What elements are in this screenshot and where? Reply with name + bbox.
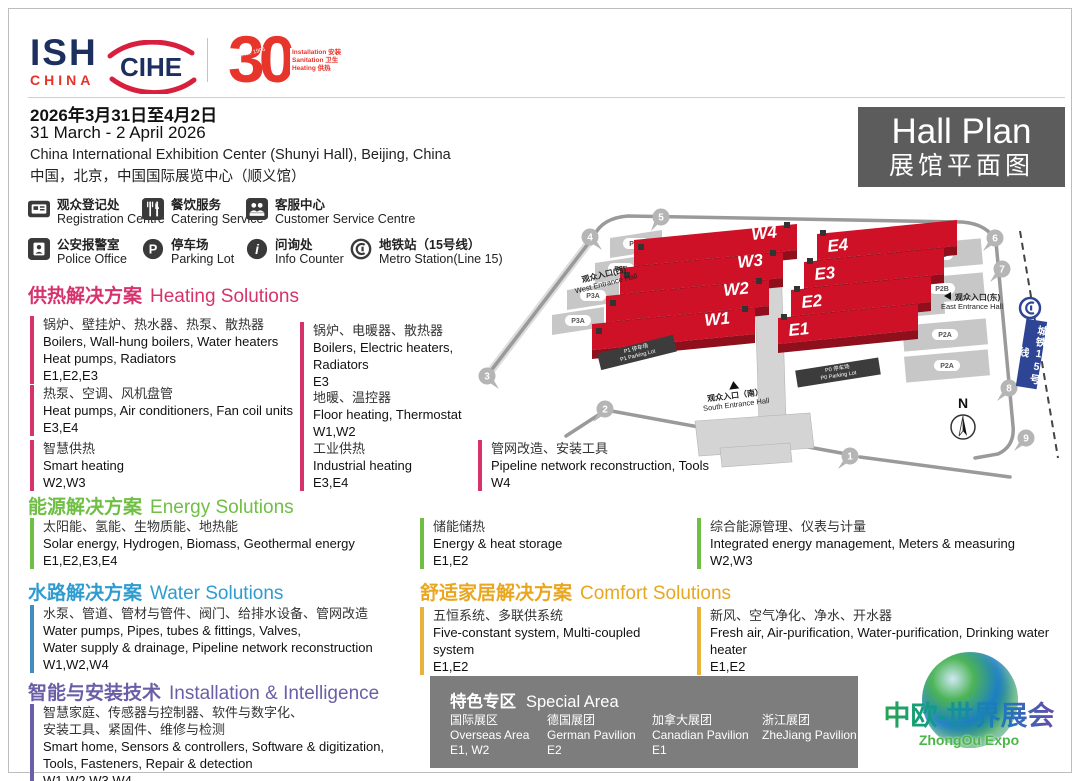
- section-title-en: Heating Solutions: [150, 286, 299, 307]
- svg-text:2: 2: [602, 405, 608, 416]
- svg-text:3: 3: [484, 372, 490, 383]
- svg-text:P: P: [149, 242, 158, 257]
- map-drawing: P3B P3B P3A P3A P2B P2B P2A P2A: [470, 186, 1078, 504]
- special-area-item: 德国展团German PavilionE2: [547, 713, 652, 758]
- hall-label-w3: W3: [736, 250, 764, 272]
- hall-label-w2: W2: [722, 278, 750, 300]
- solution-item: 智慧家庭、传感器与控制器、软件与数字化、 安装工具、紧固件、维修与检测Smart…: [30, 704, 425, 781]
- east-entrance-label: 观众入口(东) East Entrance Hall: [922, 292, 1022, 311]
- west-arrow-icon: [944, 292, 951, 300]
- hall-label-w4: W4: [750, 222, 778, 244]
- legend-label-cn: 客服中心: [275, 198, 415, 212]
- svg-text:9: 9: [1023, 434, 1029, 445]
- special-area-item: 国际展区Overseas AreaE1, W2: [450, 713, 547, 758]
- metro-line-15-label: 城铁15号线: [1016, 319, 1047, 389]
- anniversary-caption: Sanitation 卫生: [292, 57, 341, 65]
- item-color-bar: [300, 440, 304, 491]
- svg-text:7: 7: [999, 265, 1005, 276]
- legend-police: 公安报警室 Police Office: [28, 238, 127, 266]
- svg-text:1: 1: [847, 452, 853, 463]
- hall-plan-map: P3B P3B P3A P3A P2B P2B P2A P2A: [470, 186, 1078, 504]
- hall-label-e1: E1: [787, 319, 810, 340]
- legend-label-cn: 公安报警室: [57, 238, 127, 252]
- special-area-panel: 特色专区Special Area 国际展区Overseas AreaE1, W2…: [430, 676, 858, 768]
- solution-item: 五恒系统、多联供系统Five-constant system, Multi-co…: [420, 607, 680, 675]
- item-color-bar: [30, 440, 34, 491]
- anniversary-caption: Heating 供热: [292, 65, 341, 73]
- legend-label-en: Parking Lot: [171, 252, 234, 266]
- item-color-bar: [300, 389, 304, 440]
- people-desk-icon: [246, 198, 268, 220]
- section-heading-water: 水路解决方案Water Solutions: [28, 578, 283, 605]
- item-color-bar: [30, 605, 34, 673]
- header-divider-line: [28, 97, 1065, 98]
- metro-icon: [350, 238, 372, 260]
- special-area-title: 特色专区Special Area: [450, 688, 619, 712]
- cihe-logo-text: CIHE: [120, 52, 182, 82]
- ish-china-logo: ISH CHINA: [30, 34, 98, 87]
- item-color-bar: [30, 518, 34, 569]
- section-title-cn: 能源解决方案: [28, 497, 142, 518]
- venue-cn: 中国，北京，中国国际展览中心（顺义馆）: [30, 165, 306, 186]
- section-title-en: Comfort Solutions: [580, 583, 731, 604]
- item-color-bar: [30, 385, 34, 436]
- cihe-logo: CIHE: [104, 40, 198, 99]
- legend-label-cn: 问询处: [275, 238, 344, 252]
- ish-logo-subtext: CHINA: [30, 73, 98, 87]
- legend-label-en: Customer Service Centre: [275, 212, 415, 226]
- hall-label-e3: E3: [813, 263, 836, 284]
- solution-item: 综合能源管理、仪表与计量Integrated energy management…: [697, 518, 1047, 569]
- special-area-item: 加拿大展团Canadian PavilionE1: [652, 713, 762, 758]
- svg-text:P3A: P3A: [571, 318, 585, 325]
- solution-item: 智慧供热Smart heatingW2,W3: [30, 440, 298, 491]
- item-color-bar: [697, 607, 701, 675]
- special-area-item: 浙江展团ZheJiang Pavilion: [762, 713, 857, 758]
- item-color-bar: [30, 704, 34, 781]
- special-area-items: 国际展区Overseas AreaE1, W2 德国展团German Pavil…: [450, 713, 857, 758]
- hall-label-e4: E4: [826, 235, 849, 256]
- section-heading-installation: 智能与安装技术Installation & Intelligence: [28, 678, 379, 705]
- section-heading-heating: 供热解决方案Heating Solutions: [28, 281, 299, 308]
- section-title-cn: 水路解决方案: [28, 583, 142, 604]
- solution-item: 水泵、管道、管材与管件、阀门、给排水设备、管网改造Water pumps, Pi…: [30, 605, 410, 673]
- anniversary-captions: Installation 安装 Sanitation 卫生 Heating 供热: [290, 48, 343, 74]
- svg-text:6: 6: [992, 234, 998, 245]
- anniversary-caption: Installation 安装: [292, 49, 341, 57]
- item-color-bar: [420, 518, 424, 569]
- zhongou-expo-en: ZhongOu Expo: [868, 732, 1070, 748]
- venue-en: China International Exhibition Center (S…: [30, 147, 451, 163]
- page-title-cn: 展馆平面图: [889, 151, 1034, 181]
- section-title-en: Water Solutions: [150, 583, 283, 604]
- page-title: Hall Plan: [891, 113, 1031, 151]
- legend-label-en: Police Office: [57, 252, 127, 266]
- section-title-cn: 舒适家居解决方案: [420, 583, 572, 604]
- item-color-bar: [697, 518, 701, 569]
- svg-text:P2A: P2A: [940, 363, 954, 370]
- section-title-cn: 供热解决方案: [28, 286, 142, 307]
- up-arrow-icon: [728, 380, 739, 389]
- svg-text:P3A: P3A: [586, 293, 600, 300]
- legend-customer-service: 客服中心 Customer Service Centre: [246, 198, 415, 226]
- badge-icon: [28, 198, 50, 220]
- 30th-anniversary-logo: 30 Since 1996 Installation 安装 Sanitation…: [228, 24, 348, 98]
- hall-label-w1: W1: [703, 308, 730, 330]
- north-compass: N: [951, 395, 975, 439]
- section-title-en: Installation & Intelligence: [169, 683, 379, 704]
- item-color-bar: [420, 607, 424, 675]
- svg-text:N: N: [958, 395, 968, 411]
- ish-logo-text: ISH: [30, 34, 98, 71]
- solution-item: 锅炉、壁挂炉、热水器、热泵、散热器Boilers, Wall-hung boil…: [30, 316, 298, 384]
- zhongou-expo-logo: 中欧-世界展会 ZhongOu Expo: [868, 650, 1070, 772]
- zhongou-expo-cn: 中欧-世界展会: [868, 694, 1070, 733]
- logo-divider: [207, 38, 208, 82]
- section-heading-comfort: 舒适家居解决方案Comfort Solutions: [420, 578, 731, 605]
- solution-item: 储能储热Energy & heat storageE1,E2: [420, 518, 670, 569]
- section-heading-energy: 能源解决方案Energy Solutions: [28, 492, 294, 519]
- svg-text:P2A: P2A: [938, 332, 952, 339]
- svg-text:5: 5: [658, 213, 664, 224]
- legend-label-en: Info Counter: [275, 252, 344, 266]
- item-color-bar: [30, 316, 34, 384]
- svg-text:4: 4: [587, 233, 593, 244]
- section-title-cn: 智能与安装技术: [28, 683, 161, 704]
- info-icon: i: [246, 238, 268, 260]
- legend-info: i 问询处 Info Counter: [246, 238, 344, 266]
- solution-item: 太阳能、氢能、生物质能、地热能Solar energy, Hydrogen, B…: [30, 518, 410, 569]
- police-icon: [28, 238, 50, 260]
- section-title-en: Energy Solutions: [150, 497, 294, 518]
- utensils-icon: [142, 198, 164, 220]
- hall-plan-page: ISH CHINA CIHE 30 Since 1996 Installatio…: [0, 0, 1080, 781]
- item-color-bar: [300, 322, 304, 390]
- hall-plan-title-box: Hall Plan 展馆平面图: [858, 107, 1065, 187]
- hall-label-e2: E2: [800, 291, 823, 312]
- legend-parking: P 停车场 Parking Lot: [142, 238, 234, 266]
- solution-item: 热泵、空调、风机盘管Heat pumps, Air conditioners, …: [30, 385, 298, 436]
- parking-icon: P: [142, 238, 164, 260]
- legend-label-cn: 停车场: [171, 238, 234, 252]
- event-date-en: 31 March - 2 April 2026: [30, 123, 206, 143]
